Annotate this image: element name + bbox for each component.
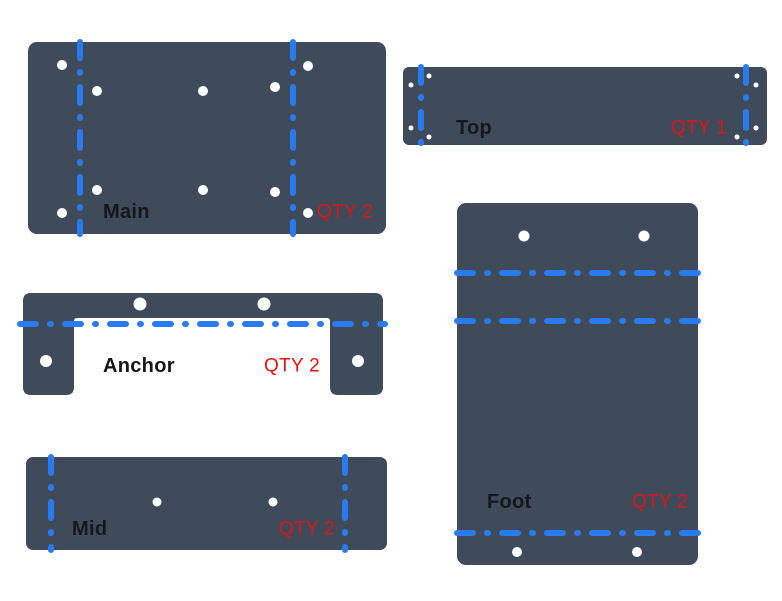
part-top-hole xyxy=(427,135,432,140)
part-main-hole xyxy=(57,208,67,218)
part-main-hole xyxy=(198,86,208,96)
part-foot-hole xyxy=(639,231,650,242)
part-anchor-hole xyxy=(352,355,364,367)
part-main: MainQTY 2 xyxy=(28,42,386,234)
part-mid-hole xyxy=(153,498,162,507)
part-top-qty-label: QTY 1 xyxy=(671,118,727,139)
part-foot: FootQTY 2 xyxy=(457,203,698,565)
part-top-hole xyxy=(754,126,759,131)
part-main-qty-label: QTY 2 xyxy=(317,202,373,223)
part-anchor-hole xyxy=(40,355,52,367)
part-main-hole xyxy=(303,61,313,71)
part-foot-hole xyxy=(632,547,642,557)
part-anchor-qty-label: QTY 2 xyxy=(264,356,320,377)
part-top-hole xyxy=(409,126,414,131)
part-mid: MidQTY 2 xyxy=(26,457,387,550)
part-mid-qty-label: QTY 2 xyxy=(279,519,335,540)
part-main-hole xyxy=(198,185,208,195)
part-foot-hole xyxy=(519,231,530,242)
part-main-hole xyxy=(92,185,102,195)
part-top-hole xyxy=(427,74,432,79)
part-top: TopQTY 1 xyxy=(403,67,767,145)
diagram-canvas: MainQTY 2TopQTY 1AnchorQTY 2MidQTY 2Foot… xyxy=(0,0,782,601)
part-anchor-plate xyxy=(23,293,383,395)
part-foot-label: Foot xyxy=(487,491,532,513)
part-foot-hole xyxy=(512,547,522,557)
part-top-label: Top xyxy=(456,117,492,139)
part-top-hole xyxy=(735,74,740,79)
part-mid-hole xyxy=(269,498,278,507)
part-anchor-label: Anchor xyxy=(103,355,175,377)
part-top-hole xyxy=(409,83,414,88)
part-anchor-hole xyxy=(258,298,271,311)
part-main-hole xyxy=(270,82,280,92)
part-main-hole xyxy=(92,86,102,96)
part-main-hole xyxy=(57,60,67,70)
part-top-hole xyxy=(735,135,740,140)
part-main-hole xyxy=(303,208,313,218)
part-main-hole xyxy=(270,187,280,197)
part-anchor: AnchorQTY 2 xyxy=(20,293,385,395)
part-anchor-hole xyxy=(134,298,147,311)
part-top-hole xyxy=(754,83,759,88)
part-main-label: Main xyxy=(103,201,150,223)
part-mid-label: Mid xyxy=(72,518,107,540)
part-foot-qty-label: QTY 2 xyxy=(632,492,688,513)
